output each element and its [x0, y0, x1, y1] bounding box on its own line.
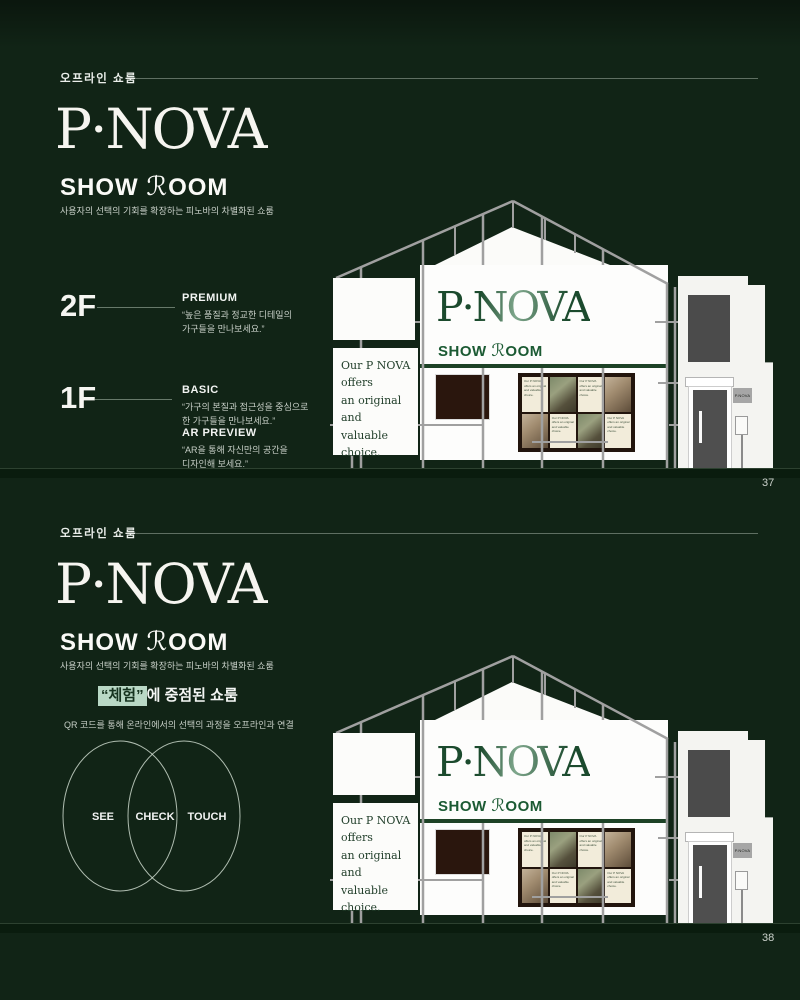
- sign-post: [741, 890, 743, 923]
- header-rule: [136, 78, 758, 79]
- feature-subtext: QR 코드를 통해 온라인에서의 선택의 과정을 오프라인과 연결: [64, 718, 294, 731]
- page-number: 38: [762, 932, 774, 944]
- door-lintel: [685, 832, 734, 842]
- show-text: SHOW: [60, 174, 139, 201]
- brand-logo: P·NOVA: [55, 99, 265, 160]
- floor-level-2f: 2F: [60, 288, 96, 324]
- standing-sign: [735, 871, 748, 890]
- side-building: P.NOVA: [678, 276, 773, 468]
- brand-logo: P·NOVA: [55, 554, 265, 615]
- eyebrow-label: 오프라인 쇼룸: [60, 70, 137, 86]
- feature-heading: “체험”에 중점된 쇼룸: [98, 684, 238, 705]
- brand-tagline: 사용자의 선택의 기회를 확장하는 피노바의 차별화된 쇼룸: [60, 204, 274, 217]
- oom-text: OOM: [168, 174, 228, 201]
- venn-diagram: SEE CHECK TOUCH: [58, 738, 258, 898]
- building-illustration: P·NOVA SHOW ℛOOM Our P NOVA offers an or…: [328, 647, 798, 933]
- script-r: ℛ: [146, 627, 168, 657]
- slide-38: 오프라인 쇼룸 P·NOVA SHOW ℛOOM 사용자의 선택의 기회를 확장…: [0, 455, 800, 1000]
- building-slot: P·NOVA SHOW ℛOOM Our P NOVA offers an or…: [328, 192, 798, 478]
- door-handle: [699, 866, 702, 898]
- venn-label-touch: TOUCH: [188, 811, 227, 823]
- floor-level-1f: 1F: [60, 380, 96, 416]
- door-handle: [699, 411, 702, 443]
- script-r: ℛ: [146, 172, 168, 202]
- feature-heading-rest: 에 중점된 쇼룸: [147, 687, 238, 704]
- standing-sign: [735, 416, 748, 435]
- floor-item-title-basic: BASIC: [182, 384, 219, 396]
- side-window: [688, 750, 730, 817]
- brand-subtitle-showroom: SHOW ℛOOM: [60, 172, 228, 202]
- venn-label-see: SEE: [92, 811, 114, 823]
- door-frame: [689, 842, 731, 923]
- floor-item-title-ar: AR PREVIEW: [182, 427, 257, 439]
- side-building: P.NOVA: [678, 731, 773, 923]
- brand-plaque: P.NOVA: [733, 843, 752, 858]
- building-slot: P·NOVA SHOW ℛOOM Our P NOVA offers an or…: [328, 647, 798, 933]
- floor-rule-1f: [94, 399, 172, 400]
- floor-item-desc-premium: “높은 품질과 정교한 디테일의 가구들을 만나보세요.”: [182, 309, 292, 337]
- floor-item-title-premium: PREMIUM: [182, 292, 237, 304]
- entry-door: [693, 845, 727, 923]
- header-rule: [136, 533, 758, 534]
- brand-tagline: 사용자의 선택의 기회를 확장하는 피노바의 차별화된 쇼룸: [60, 659, 274, 672]
- floor-item-desc-basic: “가구의 본질과 접근성을 중심으로 한 가구들을 만나보세요.”: [182, 401, 308, 429]
- floor-rule-2f: [97, 307, 175, 308]
- building-illustration: P·NOVA SHOW ℛOOM Our P NOVA offers an or…: [328, 192, 798, 478]
- info-panel-blank: [333, 733, 415, 795]
- feature-highlight-chip: “체험”: [98, 686, 147, 706]
- info-panel-text: Our P NOVA offers an original and valuab…: [333, 803, 418, 910]
- eyebrow-label: 오프라인 쇼룸: [60, 525, 137, 541]
- door-lintel: [685, 377, 734, 387]
- side-window: [688, 295, 730, 362]
- ground-strip: [0, 923, 800, 933]
- oom-text: OOM: [168, 629, 228, 656]
- brand-plaque: P.NOVA: [733, 388, 752, 403]
- info-panel-text: Our P NOVA offers an original and valuab…: [333, 348, 418, 455]
- venn-label-check: CHECK: [135, 811, 174, 823]
- presentation-canvas: 오프라인 쇼룸 P·NOVA SHOW ℛOOM 사용자의 선택의 기회를 확장…: [0, 0, 800, 1000]
- show-text: SHOW: [60, 629, 139, 656]
- brand-subtitle-showroom: SHOW ℛOOM: [60, 627, 228, 657]
- info-panel-blank: [333, 278, 415, 340]
